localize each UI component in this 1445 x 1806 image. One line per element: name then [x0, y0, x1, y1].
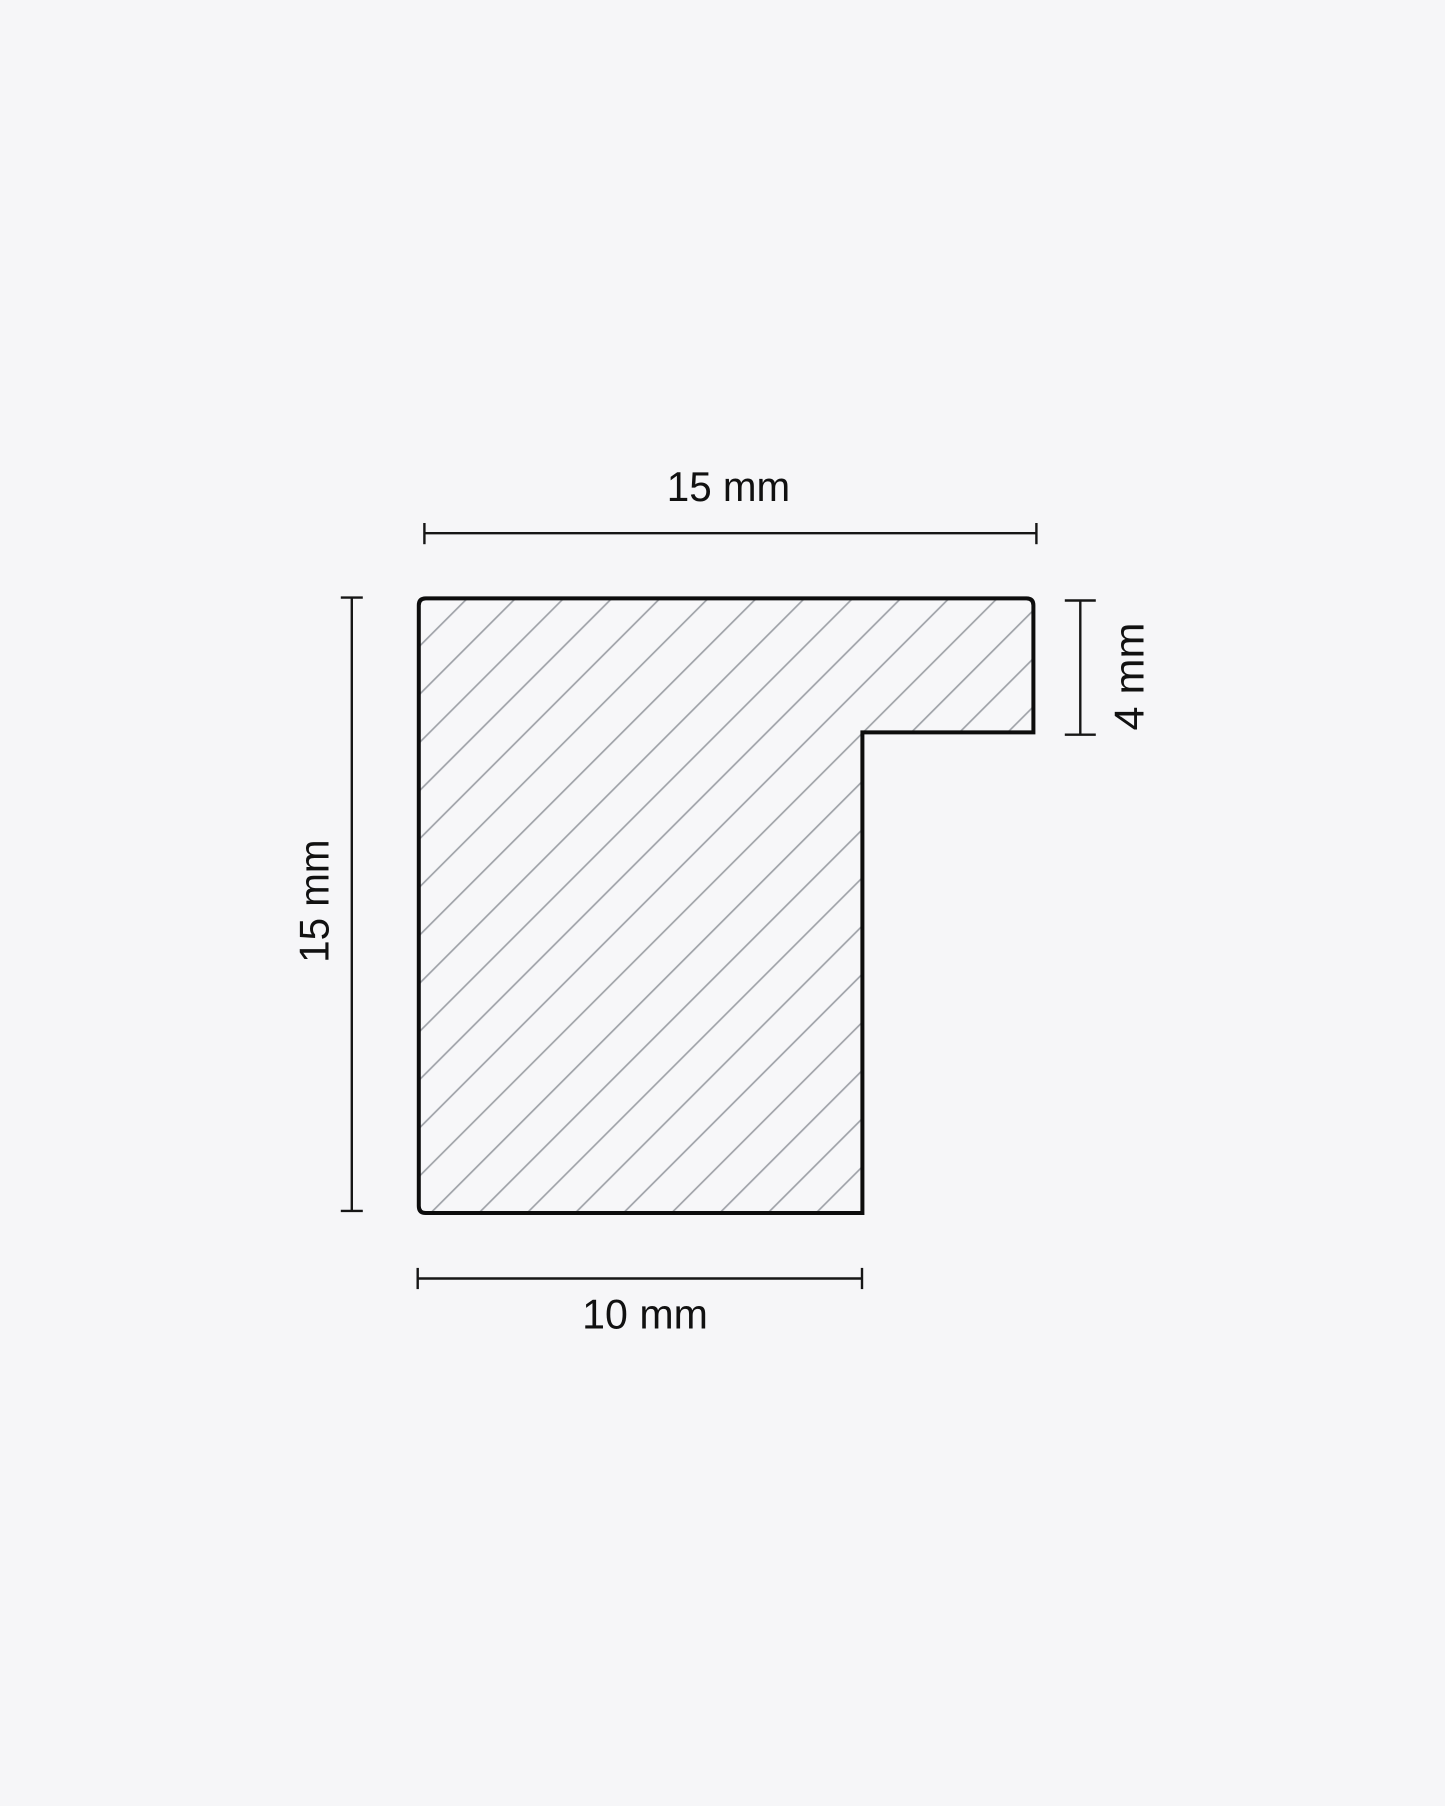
svg-text:15 mm: 15 mm: [291, 840, 338, 963]
svg-text:15 mm: 15 mm: [667, 463, 790, 510]
svg-text:10 mm: 10 mm: [582, 1291, 708, 1338]
svg-text:4 mm: 4 mm: [1106, 623, 1153, 731]
